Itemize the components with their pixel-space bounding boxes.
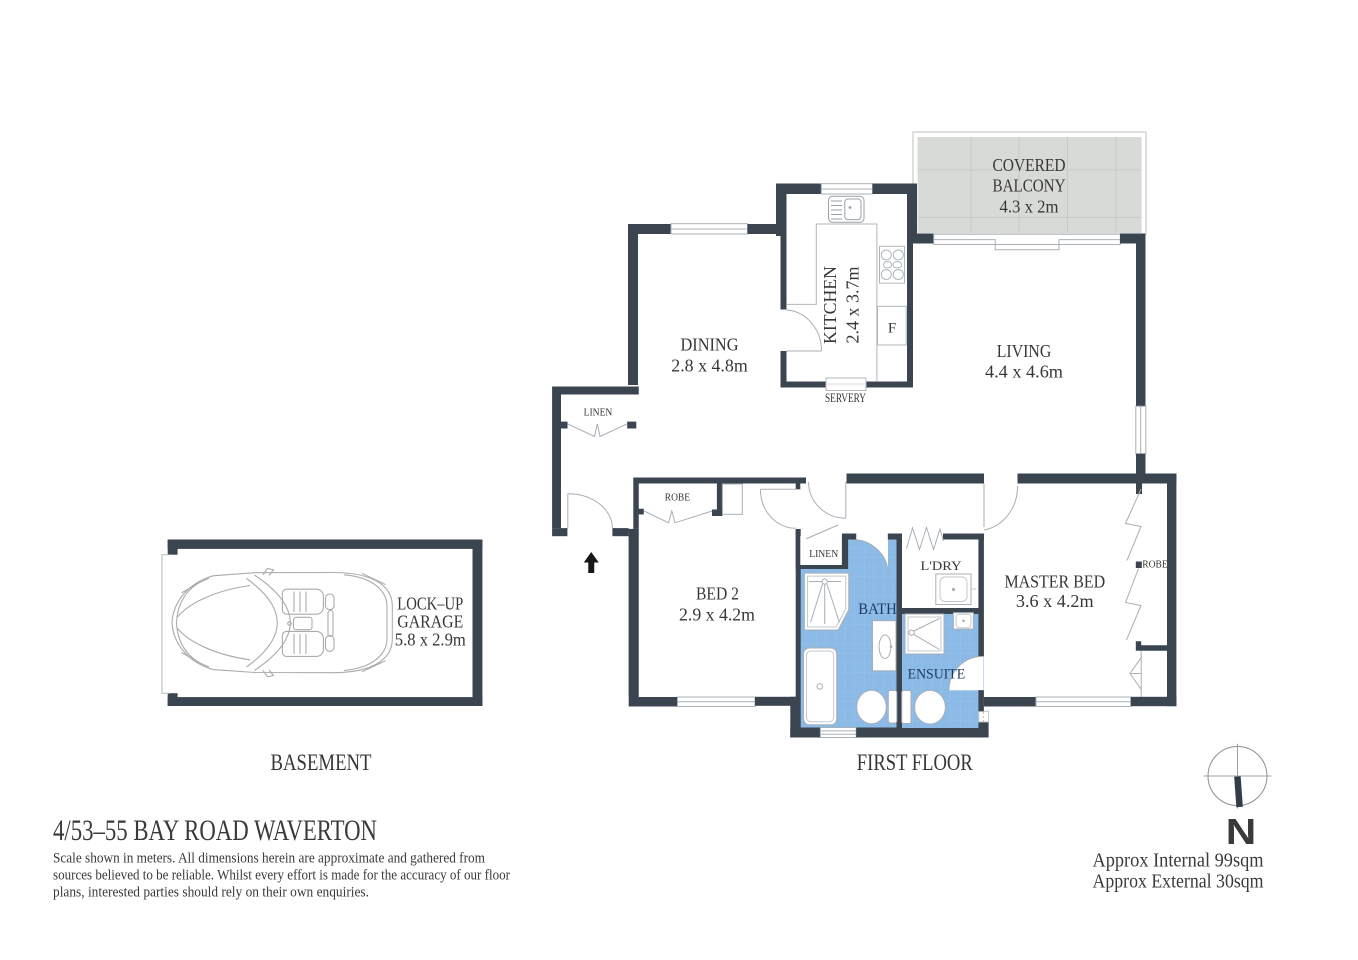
svg-text:Approx External 30sqm: Approx External 30sqm [1093,871,1264,893]
svg-text:DINING: DINING [681,335,739,355]
svg-text:LIVING: LIVING [997,341,1052,361]
svg-text:4/53–55 BAY ROAD WAVERTON: 4/53–55 BAY ROAD WAVERTON [53,814,377,847]
svg-text:2.9 x 4.2m: 2.9 x 4.2m [679,605,755,625]
svg-text:LOCK–UP: LOCK–UP [397,594,463,614]
svg-text:SERVERY: SERVERY [825,391,866,405]
svg-text:2.4 x 3.7m: 2.4 x 3.7m [843,267,863,344]
svg-text:5.8 x 2.9m: 5.8 x 2.9m [395,630,466,650]
svg-text:KITCHEN: KITCHEN [820,266,840,344]
svg-text:N: N [1226,811,1257,852]
svg-text:2.8 x 4.8m: 2.8 x 4.8m [671,356,748,376]
svg-text:COVERED: COVERED [993,155,1066,175]
svg-text:BED 2: BED 2 [696,584,739,604]
svg-text:Approx Internal 99sqm: Approx Internal 99sqm [1093,850,1264,872]
svg-text:ROBE: ROBE [665,493,690,504]
svg-text:BALCONY: BALCONY [993,176,1066,196]
svg-text:ENSUITE: ENSUITE [908,667,966,683]
svg-text:3.6 x 4.2m: 3.6 x 4.2m [1016,591,1094,611]
svg-text:sources believed to be reliab: sources believed to be reliable. Whilst … [53,868,510,884]
svg-text:BATH: BATH [858,601,897,618]
svg-text:plans, interested parties shou: plans, interested parties should rely on… [53,885,369,901]
svg-text:LINEN: LINEN [809,549,838,560]
svg-text:GARAGE: GARAGE [397,612,463,632]
svg-text:Scale shown in meters. All dim: Scale shown in meters. All dimensions he… [53,851,486,867]
svg-text:MASTER BED: MASTER BED [1004,572,1105,592]
svg-text:LINEN: LINEN [584,408,613,419]
svg-text:F: F [888,321,896,337]
svg-text:4.4 x 4.6m: 4.4 x 4.6m [985,362,1063,382]
svg-text:BASEMENT: BASEMENT [271,750,372,776]
svg-text:L'DRY: L'DRY [921,559,962,573]
svg-text:4.3 x 2m: 4.3 x 2m [1000,197,1059,217]
svg-text:FIRST FLOOR: FIRST FLOOR [857,750,973,776]
svg-text:ROBE: ROBE [1142,560,1168,571]
